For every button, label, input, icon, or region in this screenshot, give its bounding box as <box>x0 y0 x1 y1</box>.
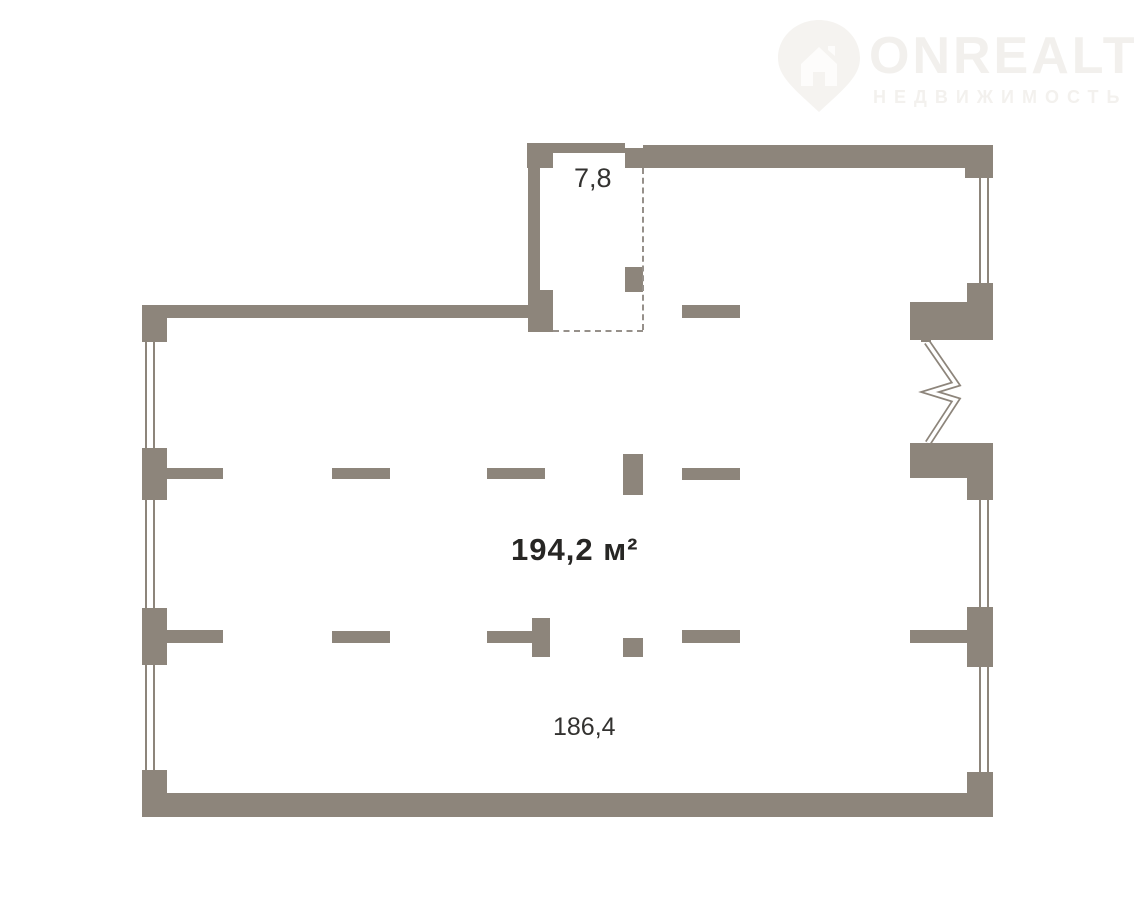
window-line <box>145 665 147 770</box>
wall-segment <box>910 630 967 643</box>
wall-segment <box>967 607 993 667</box>
wall-segment <box>682 305 740 318</box>
wall-segment <box>332 468 390 479</box>
window-line <box>153 665 155 770</box>
wall-segment <box>623 638 643 657</box>
window-line <box>979 178 981 283</box>
wall-segment <box>967 283 993 303</box>
wall-segment <box>532 618 550 657</box>
window-line <box>153 342 155 448</box>
wall-segment <box>623 454 643 495</box>
floor-plan: 7,8 194,2 м² 186,4 <box>0 0 1134 910</box>
wall-segment <box>625 267 643 292</box>
wall-segment <box>142 608 167 665</box>
wall-segment <box>965 145 993 178</box>
wall-segment <box>553 143 625 153</box>
window-line <box>145 342 147 448</box>
total-area-label: 194,2 м² <box>511 532 638 568</box>
wall-segment <box>967 478 993 500</box>
wall-segment <box>165 468 223 479</box>
wall-segment <box>921 443 931 450</box>
wall-segment <box>528 290 553 332</box>
wall-segment <box>487 631 532 643</box>
main-area-label: 186,4 <box>553 713 616 742</box>
window-line <box>979 500 981 607</box>
window-line <box>153 500 155 608</box>
dashed-boundary-line <box>642 168 644 330</box>
wall-segment <box>625 148 643 168</box>
wall-segment <box>643 145 965 168</box>
wall-segment <box>528 143 540 305</box>
wall-segment <box>682 630 740 643</box>
wall-segment <box>142 305 167 342</box>
window-line <box>987 667 989 772</box>
wall-segment <box>142 448 167 500</box>
wall-segment <box>142 305 528 318</box>
floor-plan-page: ONREALT НЕДВИЖИМОСТЬ 7,8 194,2 м² 186,4 <box>0 0 1134 910</box>
room-area-label-small: 7,8 <box>574 163 612 194</box>
wall-segment <box>682 468 740 480</box>
wall-segment <box>165 630 223 643</box>
wall-segment <box>921 334 931 342</box>
wall-segment <box>142 793 993 817</box>
wall-segment <box>487 468 545 479</box>
window-line <box>145 500 147 608</box>
wall-segment <box>332 631 390 643</box>
window-line <box>979 667 981 772</box>
window-line <box>987 178 989 283</box>
wall-segment <box>967 772 993 817</box>
dashed-boundary-line <box>553 330 643 332</box>
window-line <box>987 500 989 607</box>
